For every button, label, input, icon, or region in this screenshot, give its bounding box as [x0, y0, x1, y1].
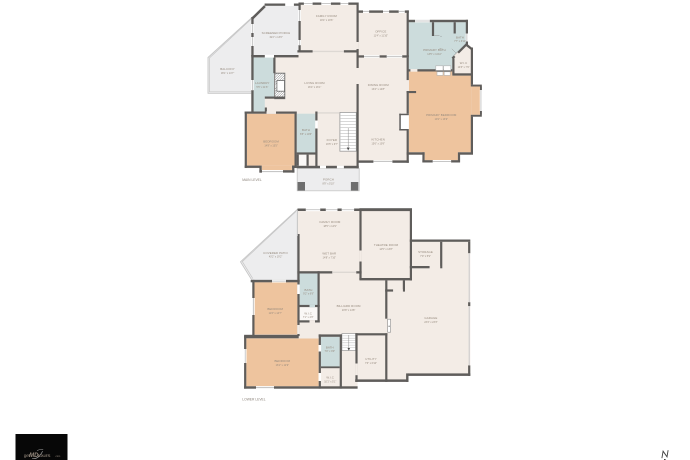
svg-text:DINING ROOM: DINING ROOM	[368, 83, 390, 87]
svg-text:5'5" x 11'6": 5'5" x 11'6"	[256, 86, 268, 89]
svg-text:THEATRE ROOM: THEATRE ROOM	[374, 243, 399, 247]
svg-text:7'6" x 6'10": 7'6" x 6'10"	[365, 362, 377, 365]
svg-text:8'9" x 5'10": 8'9" x 5'10"	[322, 183, 334, 186]
svg-text:19'1" x 13'9": 19'1" x 13'9"	[435, 118, 449, 121]
svg-text:STORAGE: STORAGE	[418, 250, 433, 254]
svg-text:43'2" x 19'2": 43'2" x 19'2"	[269, 256, 283, 259]
svg-text:10'3" x 7'9": 10'3" x 7'9"	[458, 66, 470, 69]
svg-text:LAUNDRY: LAUNDRY	[255, 81, 269, 85]
svg-text:BEDROOM: BEDROOM	[263, 140, 279, 144]
svg-text:7'0" x 9'0": 7'0" x 9'0"	[324, 350, 335, 353]
svg-text:W.I.C: W.I.C	[304, 311, 312, 315]
svg-text:6'5" x 10'6": 6'5" x 10'6"	[300, 133, 312, 136]
svg-text:15'6" x 10'9": 15'6" x 10'9"	[372, 142, 386, 145]
svg-text:KITCHEN: KITCHEN	[372, 138, 385, 142]
svg-text:16'4" x 16'1": 16'4" x 16'1"	[308, 86, 322, 89]
svg-text:10'1" x 5'1": 10'1" x 5'1"	[324, 380, 336, 383]
svg-text:16'5" x 9'7": 16'5" x 9'7"	[326, 143, 338, 146]
svg-text:13'5" x 11'10": 13'5" x 11'10"	[427, 53, 442, 56]
svg-text:7'7" x 3'11": 7'7" x 3'11"	[454, 40, 466, 43]
svg-text:FAMILY ROOM: FAMILY ROOM	[320, 220, 341, 224]
svg-text:23'4" x 23'3": 23'4" x 23'3"	[424, 321, 438, 324]
svg-text:14'8" x 13'5": 14'8" x 13'5"	[264, 144, 278, 147]
svg-text:PORCH: PORCH	[323, 178, 334, 182]
svg-text:LIVING ROOM: LIVING ROOM	[304, 81, 325, 85]
svg-text:BALCONY: BALCONY	[220, 67, 235, 71]
svg-text:9'2" x 6'9": 9'2" x 6'9"	[303, 293, 314, 296]
svg-text:UTILITY: UTILITY	[365, 357, 376, 361]
svg-text:7'9" x 5'9": 7'9" x 5'9"	[420, 255, 431, 258]
svg-text:PRIMARY BATH: PRIMARY BATH	[423, 48, 446, 52]
svg-text:GARAGE: GARAGE	[424, 316, 437, 320]
svg-text:COVERED PATIO: COVERED PATIO	[263, 251, 288, 255]
svg-text:W.I.C: W.I.C	[326, 376, 334, 380]
svg-text:BEDROOM: BEDROOM	[274, 359, 290, 363]
svg-text:14'8" x 7'10": 14'8" x 7'10"	[323, 257, 337, 260]
svg-text:BATH: BATH	[305, 288, 313, 292]
svg-text:18'5" x 14'9": 18'5" x 14'9"	[323, 225, 337, 228]
svg-text:20'8" x 14'8": 20'8" x 14'8"	[342, 309, 356, 312]
svg-text:SCREENED PORCH: SCREENED PORCH	[262, 31, 291, 35]
svg-text:.com: .com	[55, 455, 60, 458]
svg-text:OFFICE: OFFICE	[375, 30, 386, 34]
svg-text:BATH: BATH	[326, 345, 334, 349]
svg-text:LOWER LEVEL: LOWER LEVEL	[242, 398, 265, 402]
svg-text:tours: tours	[38, 453, 52, 459]
svg-text:BEDROOM: BEDROOM	[267, 307, 283, 311]
svg-text:19'2" x 13'6": 19'2" x 13'6"	[269, 36, 283, 39]
svg-text:W.I.C: W.I.C	[460, 61, 468, 65]
svg-text:MAIN LEVEL: MAIN LEVEL	[242, 178, 262, 182]
svg-text:14'5" x 13'8": 14'5" x 13'8"	[379, 248, 393, 251]
svg-text:PRIMARY BEDROOM: PRIMARY BEDROOM	[426, 113, 457, 117]
svg-text:19'4" x 19'6": 19'4" x 19'6"	[320, 19, 334, 22]
svg-text:18'1" x 14'7": 18'1" x 14'7"	[221, 72, 235, 75]
svg-text:7'1" x 4'3": 7'1" x 4'3"	[303, 316, 314, 319]
svg-text:16'1" x 12'9": 16'1" x 12'9"	[276, 364, 290, 367]
svg-text:BILLIARD ROOM: BILLIARD ROOM	[337, 304, 361, 308]
svg-text:11'4" x 11'10": 11'4" x 11'10"	[374, 35, 388, 38]
svg-text:11'6" x 14'7": 11'6" x 14'7"	[269, 312, 282, 315]
svg-text:WET BAR: WET BAR	[322, 252, 336, 256]
svg-text:13'4" x 14'8": 13'4" x 14'8"	[372, 88, 386, 91]
svg-text:BATH: BATH	[302, 128, 310, 132]
svg-text:BATH: BATH	[456, 35, 464, 39]
svg-text:FOYER: FOYER	[327, 138, 337, 142]
svg-text:FAMILY ROOM: FAMILY ROOM	[316, 14, 337, 18]
